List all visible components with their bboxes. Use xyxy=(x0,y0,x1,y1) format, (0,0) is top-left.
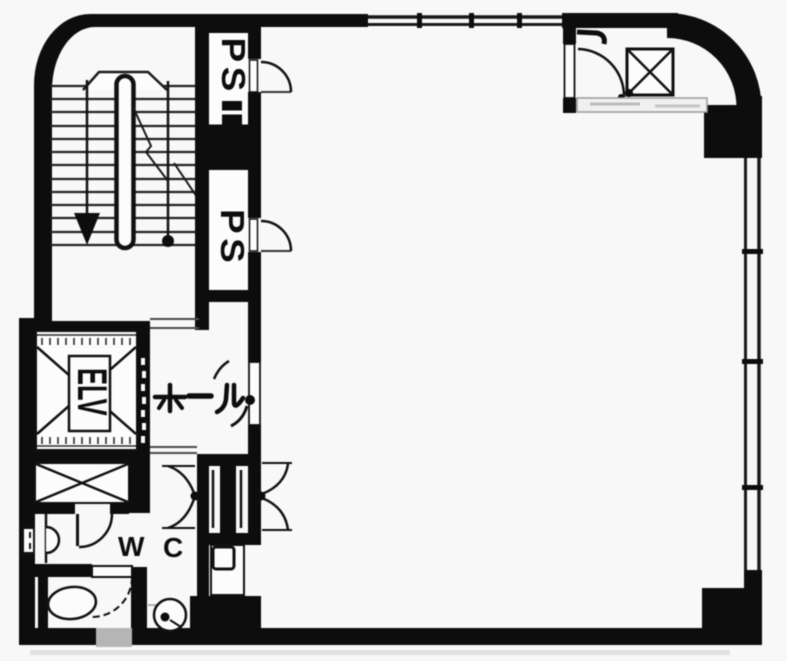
svg-text:W: W xyxy=(118,531,145,562)
svg-text:PS: PS xyxy=(213,209,250,267)
svg-text:PS: PS xyxy=(214,38,251,96)
svg-text:C: C xyxy=(163,532,183,563)
svg-text:ELV: ELV xyxy=(68,368,114,416)
